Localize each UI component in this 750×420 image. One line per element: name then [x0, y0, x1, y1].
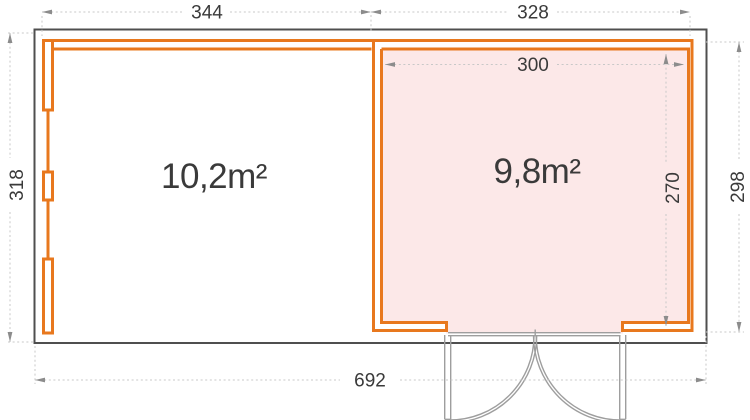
door-leaf-left: [445, 335, 451, 419]
floorplan-drawing: 344 328 318 298 300 270 69: [0, 0, 750, 420]
dimension-top-left: 344: [42, 3, 371, 37]
floorplan-canvas: 344 328 318 298 300 270 69: [0, 0, 750, 420]
dimension-bottom-label: 692: [354, 371, 386, 392]
arrow-right-icon: [696, 378, 706, 383]
dimension-inner-width-label: 300: [517, 55, 549, 76]
arrow-right-icon: [361, 10, 371, 15]
arrow-right-icon: [680, 10, 690, 15]
dimension-inner-height-label: 270: [663, 172, 684, 204]
dimension-top-left-label: 344: [191, 3, 223, 24]
door-leaf-right: [620, 335, 626, 419]
arrow-up-icon: [8, 33, 13, 43]
arrow-left-icon: [35, 378, 45, 383]
right-room-area-label: 9,8m²: [494, 152, 581, 191]
door-swing-arc-left-inner: [450, 336, 534, 420]
arrow-down-icon: [737, 322, 742, 332]
arrow-left-icon: [42, 10, 52, 15]
arrow-up-icon: [737, 42, 742, 52]
dimension-bottom: 692: [35, 336, 706, 392]
room-area-labels: 10,2m² 9,8m²: [161, 152, 580, 196]
right-room-fill: [381, 49, 689, 334]
arrow-left-icon: [371, 10, 381, 15]
dimension-top-right-label: 328: [517, 3, 549, 24]
wall-left-post-2: [44, 259, 53, 333]
dimension-right-label: 298: [728, 171, 749, 203]
wall-left-post-1: [44, 172, 53, 200]
dimension-left-label: 318: [7, 169, 28, 201]
dimension-right: 298: [706, 42, 749, 332]
left-room-area-label: 10,2m²: [161, 157, 267, 196]
wall-left-panel: [44, 41, 53, 111]
arrow-down-icon: [8, 332, 13, 342]
door-threshold: [448, 333, 621, 336]
dimension-left: 318: [7, 33, 34, 342]
door-swing-arc-right-inner: [536, 336, 620, 420]
dimension-top-right: 328: [371, 3, 690, 37]
